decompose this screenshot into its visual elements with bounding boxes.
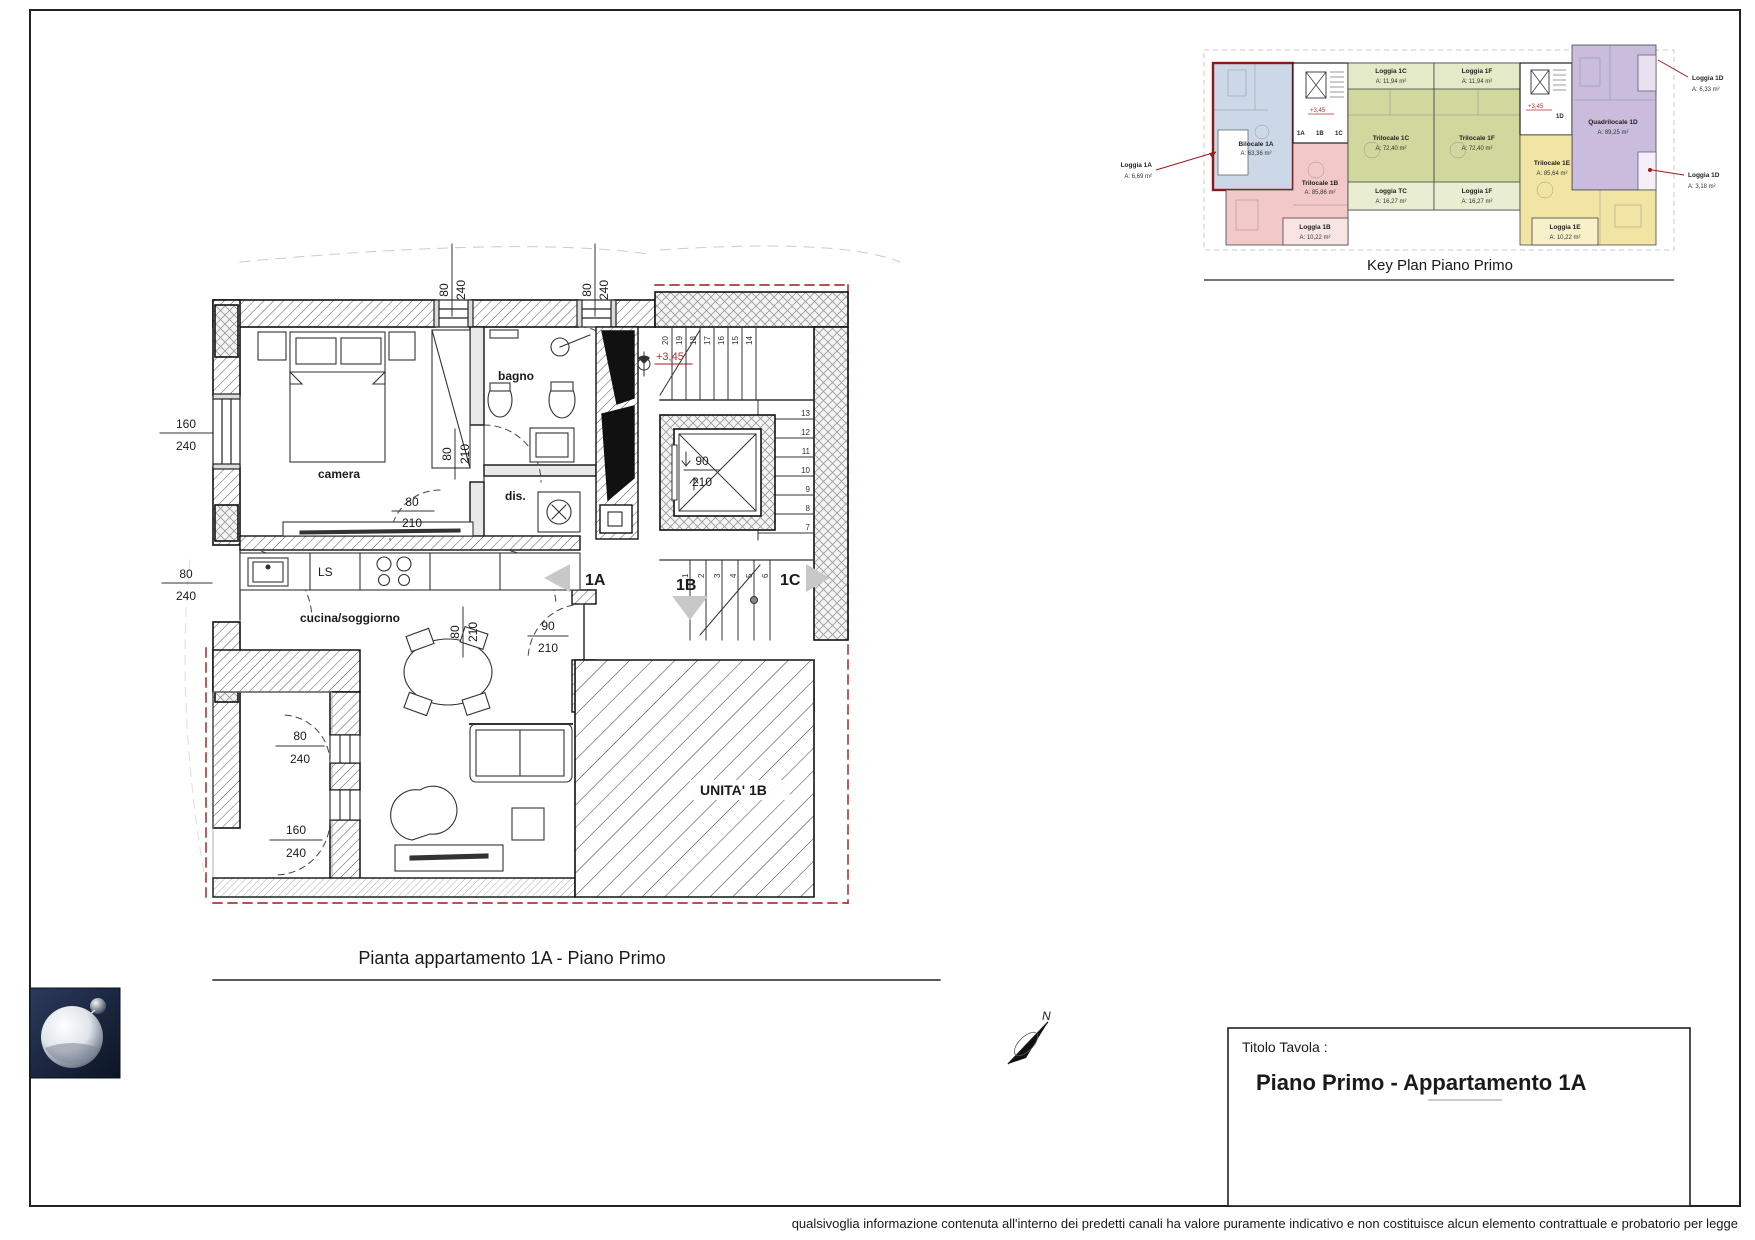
svg-text:20: 20 [661,336,670,345]
room-label-camera: camera [318,467,360,481]
svg-text:Trilocale 1F: Trilocale 1F [1459,135,1495,142]
svg-text:240: 240 [290,752,310,766]
keyplan-unit-name: Bilocale 1A [1238,141,1273,148]
svg-text:Loggia TC: Loggia TC [1375,188,1407,195]
keyplan-level-2: +3,45 [1528,104,1544,110]
svg-text:90: 90 [541,619,555,633]
north-label: N [1042,1009,1051,1023]
drawing-sheet: 1A 1B 1C camera bagno dis. cucina/soggio… [0,0,1755,1240]
svg-text:1A: 1A [1297,131,1305,137]
svg-text:210: 210 [538,641,558,655]
plan-canvas: 1A 1B 1C camera bagno dis. cucina/soggio… [0,0,1755,1240]
svg-text:6: 6 [761,573,770,578]
plan-level-label: +3,45 [656,351,684,363]
svg-text:80: 80 [580,283,594,297]
title-block: Titolo Tavola : Piano Primo - Appartamen… [1228,1028,1690,1206]
sheet-title: Piano Primo - Appartamento 1A [1256,1070,1587,1095]
svg-text:Quadrilocale 1D: Quadrilocale 1D [1588,119,1638,126]
svg-text:A: 85,64 m²: A: 85,64 m² [1536,171,1567,177]
svg-text:240: 240 [176,589,196,603]
svg-text:Loggia 1C: Loggia 1C [1375,68,1407,75]
svg-text:240: 240 [454,280,468,300]
svg-text:Loggia 1B: Loggia 1B [1299,224,1331,231]
unit-1b-label: UNITA' 1B [700,782,767,798]
north-arrow-icon: N [1008,1009,1051,1064]
svg-text:160: 160 [286,823,306,837]
svg-text:80: 80 [440,447,454,461]
svg-text:Loggia 1D: Loggia 1D [1692,75,1724,82]
title-block-label: Titolo Tavola : [1242,1039,1328,1055]
main-floor-plan: 1A 1B 1C camera bagno dis. cucina/soggio… [160,244,940,980]
level-marker-icon [638,352,650,376]
svg-text:A: 6,33 m²: A: 6,33 m² [1692,87,1720,93]
svg-text:15: 15 [731,336,740,345]
svg-text:240: 240 [286,846,306,860]
svg-text:13: 13 [801,409,810,418]
svg-text:1C: 1C [1335,131,1343,137]
svg-text:90: 90 [695,454,709,468]
svg-text:210: 210 [402,516,422,530]
svg-text:A: 10,22 m²: A: 10,22 m² [1549,235,1580,241]
svg-text:7: 7 [806,523,811,532]
svg-text:8: 8 [806,504,811,513]
unit-marker-1c: 1C [780,572,801,589]
svg-text:Loggia 1A: Loggia 1A [1121,162,1153,169]
svg-text:Loggia 1D: Loggia 1D [1688,172,1720,179]
svg-text:A: 85,86 m²: A: 85,86 m² [1304,190,1335,196]
svg-text:80: 80 [179,567,193,581]
svg-text:80: 80 [293,729,307,743]
svg-text:1D: 1D [1556,114,1564,120]
plan-caption: Pianta appartamento 1A - Piano Primo [358,948,665,968]
svg-text:80: 80 [405,495,419,509]
svg-text:A: 16,27 m²: A: 16,27 m² [1461,199,1492,205]
kitchen-sink-label: LS [318,565,333,579]
svg-text:210: 210 [458,444,472,464]
keyplan-level-1: +3,45 [1310,108,1326,114]
unit-1b-area [575,660,814,897]
svg-text:A: 6,69 m²: A: 6,69 m² [1124,174,1152,180]
svg-text:210: 210 [466,622,480,642]
svg-text:16: 16 [717,336,726,345]
svg-text:2: 2 [697,573,706,578]
svg-text:1B: 1B [1316,131,1324,137]
room-label-dis: dis. [505,489,526,503]
bedroom-furniture [258,330,470,468]
svg-text:9: 9 [806,485,811,494]
svg-text:Loggia 1E: Loggia 1E [1549,224,1581,231]
room-label-bagno: bagno [498,369,534,383]
svg-text:80: 80 [437,283,451,297]
svg-text:A: 89,25 m²: A: 89,25 m² [1597,130,1628,136]
svg-text:A: 72,40 m²: A: 72,40 m² [1461,146,1492,152]
room-label-cucina: cucina/soggiorno [300,611,400,625]
svg-text:10: 10 [801,466,810,475]
svg-text:160: 160 [176,417,196,431]
svg-text:18: 18 [689,336,698,345]
svg-text:A: 11,94 m²: A: 11,94 m² [1462,79,1493,85]
svg-text:12: 12 [801,428,810,437]
svg-text:19: 19 [675,336,684,345]
svg-text:14: 14 [745,336,754,345]
svg-text:210: 210 [692,475,712,489]
svg-text:A: 3,18 m²: A: 3,18 m² [1688,184,1716,190]
svg-text:Loggia 1F: Loggia 1F [1462,68,1493,75]
footer-disclaimer: qualsivoglia informazione contenuta all'… [792,1216,1738,1231]
svg-text:3: 3 [713,573,722,578]
svg-text:Loggia 1F: Loggia 1F [1462,188,1493,195]
bathroom-fixtures [488,330,590,532]
svg-text:11: 11 [802,447,811,456]
unit-marker-1b: 1B [676,577,696,594]
kitchen-living-furniture [240,522,580,871]
key-plan: Bilocale 1A A: 63,36 m² Trilocale 1B A: … [1121,45,1724,280]
svg-text:1: 1 [681,573,690,578]
keyplan-unit-area: A: 63,36 m² [1240,151,1271,157]
svg-text:Trilocale 1C: Trilocale 1C [1373,135,1410,142]
svg-text:A: 11,94 m²: A: 11,94 m² [1376,79,1407,85]
unit-marker-1a: 1A [585,572,606,589]
svg-text:A: 10,22 m²: A: 10,22 m² [1299,235,1330,241]
svg-text:5: 5 [745,573,754,578]
svg-text:A: 72,40 m²: A: 72,40 m² [1375,146,1406,152]
svg-text:240: 240 [597,280,611,300]
svg-text:240: 240 [176,439,196,453]
svg-text:80: 80 [448,625,462,639]
company-logo [30,988,120,1078]
svg-text:Trilocale 1E: Trilocale 1E [1534,160,1571,167]
keyplan-caption: Key Plan Piano Primo [1367,257,1513,274]
svg-text:Trilocale 1B: Trilocale 1B [1302,180,1339,187]
svg-text:17: 17 [703,336,712,345]
svg-text:4: 4 [729,573,738,578]
svg-text:A: 16,27 m²: A: 16,27 m² [1375,199,1406,205]
